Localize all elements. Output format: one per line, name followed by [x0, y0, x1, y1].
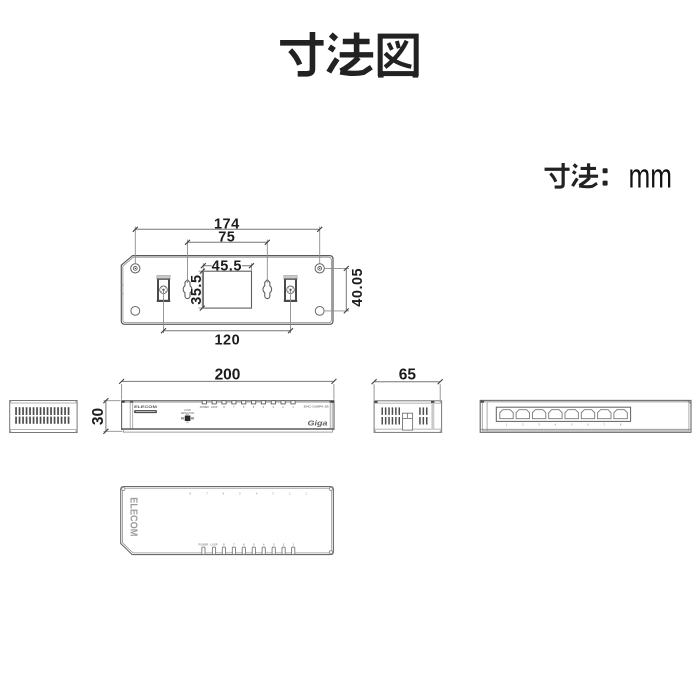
svg-text:ELECOM: ELECOM: [134, 405, 157, 409]
svg-text:LOOP: LOOP: [211, 406, 218, 409]
svg-text:LOOP: LOOP: [210, 542, 217, 546]
svg-text:EHC-G08PA-JB: EHC-G08PA-JB: [304, 406, 330, 409]
svg-text:mm: mm: [629, 157, 673, 195]
svg-text:ELECOM: ELECOM: [128, 497, 139, 536]
svg-text:POWER: POWER: [200, 406, 209, 409]
svg-text:40.05: 40.05: [350, 268, 366, 307]
svg-text:30: 30: [90, 408, 107, 425]
svg-text:POWER: POWER: [198, 542, 208, 546]
svg-text:120: 120: [214, 333, 240, 349]
svg-text:75: 75: [218, 230, 235, 246]
svg-text:35.5: 35.5: [189, 274, 205, 304]
svg-text:Giga: Giga: [308, 418, 328, 427]
svg-text:200: 200: [215, 366, 241, 383]
svg-text:65: 65: [399, 367, 417, 384]
svg-text:45.5: 45.5: [212, 259, 242, 275]
